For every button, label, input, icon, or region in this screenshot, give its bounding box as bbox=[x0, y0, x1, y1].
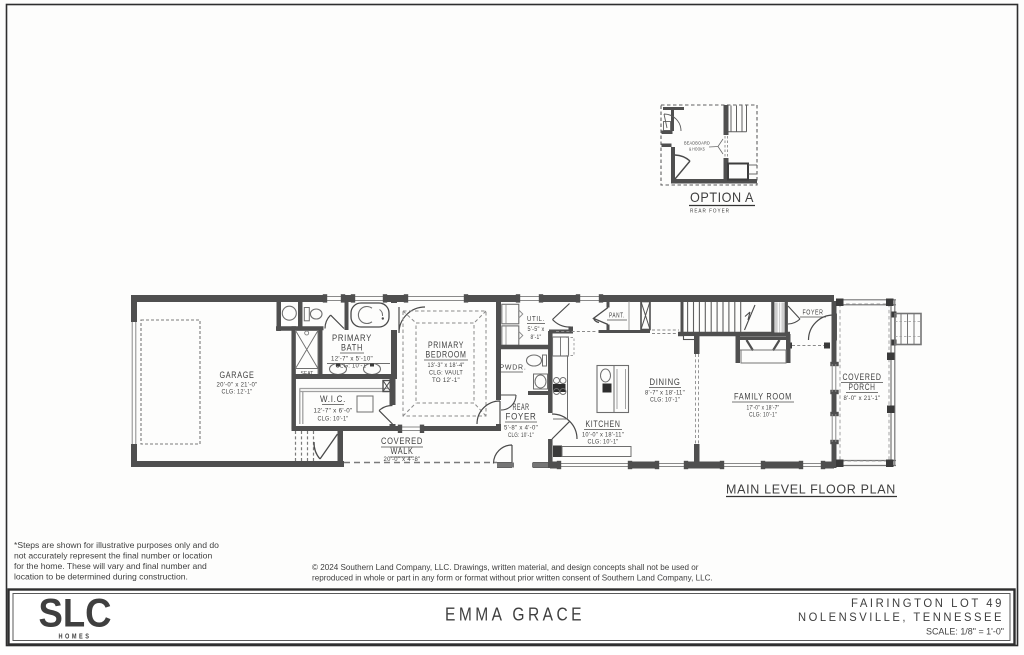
svg-text:COVERED: COVERED bbox=[843, 372, 882, 382]
svg-text:20'-0" x 4'-8": 20'-0" x 4'-8" bbox=[384, 456, 421, 463]
svg-text:W.I.C.: W.I.C. bbox=[320, 394, 346, 404]
svg-text:12'-7" x 5'-10": 12'-7" x 5'-10" bbox=[331, 356, 373, 363]
svg-text:EMMA GRACE: EMMA GRACE bbox=[445, 605, 585, 625]
svg-text:WALK: WALK bbox=[391, 446, 414, 456]
svg-text:5'-8" x 4'-0": 5'-8" x 4'-0" bbox=[504, 425, 538, 432]
svg-text:REAR: REAR bbox=[513, 402, 530, 412]
svg-text:10'-0" x 18'-11": 10'-0" x 18'-11" bbox=[582, 432, 624, 439]
svg-text:8'-0" x 21'-1": 8'-0" x 21'-1" bbox=[844, 395, 881, 402]
svg-text:& HOOKS: & HOOKS bbox=[689, 147, 705, 152]
svg-text:PRIMARY: PRIMARY bbox=[332, 333, 372, 343]
svg-text:UTIL.: UTIL. bbox=[527, 314, 545, 323]
svg-text:12'-7" x 6'-0": 12'-7" x 6'-0" bbox=[314, 408, 353, 415]
svg-text:KITCHEN: KITCHEN bbox=[586, 419, 621, 429]
svg-text:SCALE: 1/8" = 1'-0": SCALE: 1/8" = 1'-0" bbox=[926, 627, 1004, 637]
svg-text:20'-0" x 21'-0": 20'-0" x 21'-0" bbox=[217, 382, 258, 389]
svg-text:HOMES: HOMES bbox=[59, 632, 92, 641]
svg-text:NOLENSVILLE, TENNESSEE: NOLENSVILLE, TENNESSEE bbox=[798, 612, 1004, 624]
svg-text:CLG: 10'-1": CLG: 10'-1" bbox=[318, 416, 349, 423]
svg-text:BEDROOM: BEDROOM bbox=[426, 350, 467, 360]
svg-text:CLG: VAULT: CLG: VAULT bbox=[429, 370, 463, 377]
svg-text:CLG: 12'-1": CLG: 12'-1" bbox=[222, 389, 253, 396]
svg-text:17'-0" x 18'-7": 17'-0" x 18'-7" bbox=[747, 405, 780, 412]
svg-text:GARAGE: GARAGE bbox=[220, 370, 255, 380]
svg-text:8'-1": 8'-1" bbox=[531, 334, 542, 341]
svg-text:SLC: SLC bbox=[39, 592, 112, 636]
svg-text:not accurately represent the f: not accurately represent the final numbe… bbox=[14, 551, 212, 561]
svg-text:CLG: 10'-1": CLG: 10'-1" bbox=[650, 397, 680, 404]
svg-text:*Steps are shown for illustrat: *Steps are shown for illustrative purpos… bbox=[14, 540, 219, 550]
svg-text:5'-5" x: 5'-5" x bbox=[528, 326, 546, 333]
svg-text:FAMILY ROOM: FAMILY ROOM bbox=[734, 392, 792, 402]
svg-text:BATH: BATH bbox=[341, 343, 363, 353]
svg-text:MAIN LEVEL FLOOR PLAN: MAIN LEVEL FLOOR PLAN bbox=[726, 482, 896, 497]
svg-text:reproduced in whole or part in: reproduced in whole or part in any form … bbox=[312, 574, 713, 583]
svg-text:PANT.: PANT. bbox=[609, 313, 625, 320]
svg-text:FAIRINGTON LOT 49: FAIRINGTON LOT 49 bbox=[851, 598, 1004, 610]
svg-text:BEADBOARD: BEADBOARD bbox=[684, 141, 710, 146]
svg-text:© 2024 Southern Land Company,: © 2024 Southern Land Company, LLC. Drawi… bbox=[312, 563, 699, 572]
svg-text:FOYER: FOYER bbox=[803, 308, 824, 317]
svg-text:CLG: 10'-1": CLG: 10'-1" bbox=[749, 412, 777, 419]
svg-text:OPTION A: OPTION A bbox=[690, 189, 754, 205]
svg-text:COVERED: COVERED bbox=[381, 436, 423, 446]
svg-text:PRIMARY: PRIMARY bbox=[428, 340, 464, 350]
svg-text:CLG: 10'-1": CLG: 10'-1" bbox=[588, 439, 619, 446]
svg-text:location to be determined duri: location to be determined during constru… bbox=[14, 572, 188, 582]
svg-text:8'-7" x 18'-11": 8'-7" x 18'-11" bbox=[645, 390, 685, 397]
svg-text:for the home. These will vary: for the home. These will vary and final … bbox=[14, 561, 207, 571]
svg-text:TO 12'-1": TO 12'-1" bbox=[432, 377, 460, 384]
svg-text:13'-3" x 18'-4": 13'-3" x 18'-4" bbox=[428, 362, 465, 369]
svg-text:FOYER: FOYER bbox=[506, 412, 537, 422]
svg-text:CLG: 10'-1": CLG: 10'-1" bbox=[508, 432, 534, 439]
svg-text:DINING: DINING bbox=[650, 377, 681, 387]
svg-text:PWDR.: PWDR. bbox=[500, 363, 527, 372]
svg-text:PORCH: PORCH bbox=[849, 382, 876, 392]
svg-text:REAR FOYER: REAR FOYER bbox=[690, 209, 730, 215]
